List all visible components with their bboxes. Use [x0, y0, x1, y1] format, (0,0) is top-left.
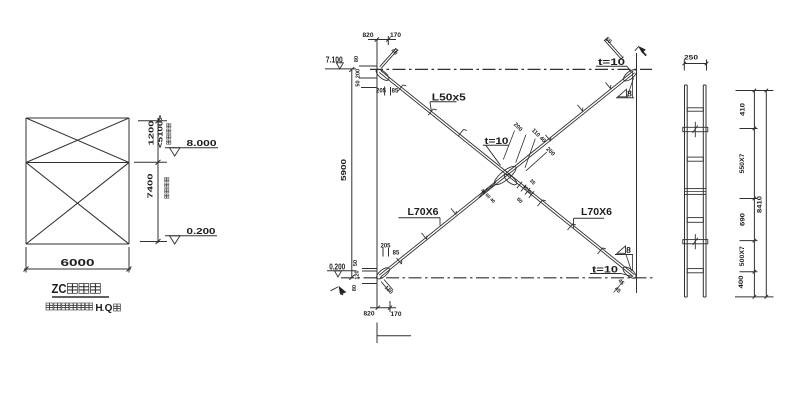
svg-text:85: 85 [393, 251, 400, 257]
svg-text:80: 80 [354, 56, 360, 62]
svg-text:820: 820 [363, 32, 375, 39]
svg-text:0.200: 0.200 [329, 263, 346, 272]
svg-text:8410: 8410 [757, 195, 764, 213]
svg-text:1200: 1200 [147, 121, 156, 146]
svg-text:50: 50 [356, 80, 362, 86]
svg-text:85: 85 [392, 89, 399, 95]
svg-text:6000: 6000 [61, 257, 95, 269]
svg-text:120: 120 [355, 270, 361, 279]
svg-text:200: 200 [356, 69, 362, 78]
svg-text:80: 80 [352, 285, 358, 291]
svg-text:L70X6: L70X6 [408, 207, 440, 218]
svg-text:820: 820 [364, 311, 376, 318]
svg-text:410: 410 [740, 102, 747, 116]
svg-text:400: 400 [738, 275, 745, 289]
svg-text:500X7: 500X7 [739, 246, 746, 267]
svg-text:170: 170 [390, 32, 402, 39]
svg-text:8: 8 [626, 245, 631, 255]
svg-text:0.200: 0.200 [187, 227, 217, 236]
svg-text:170: 170 [391, 311, 403, 318]
svg-text:250: 250 [684, 55, 698, 62]
svg-text:50: 50 [353, 260, 359, 266]
svg-text:205: 205 [380, 244, 391, 250]
svg-text:8.000: 8.000 [187, 139, 218, 148]
svg-text:L70X6: L70X6 [581, 207, 613, 218]
svg-text:<5100>: <5100> [158, 115, 165, 148]
svg-text:690: 690 [740, 212, 747, 226]
svg-text:ZC: ZC [52, 282, 67, 296]
svg-text:550X7: 550X7 [739, 153, 746, 174]
svg-text:Q: Q [105, 303, 113, 314]
svg-text:5900: 5900 [341, 159, 348, 181]
svg-text:7400: 7400 [146, 174, 155, 199]
